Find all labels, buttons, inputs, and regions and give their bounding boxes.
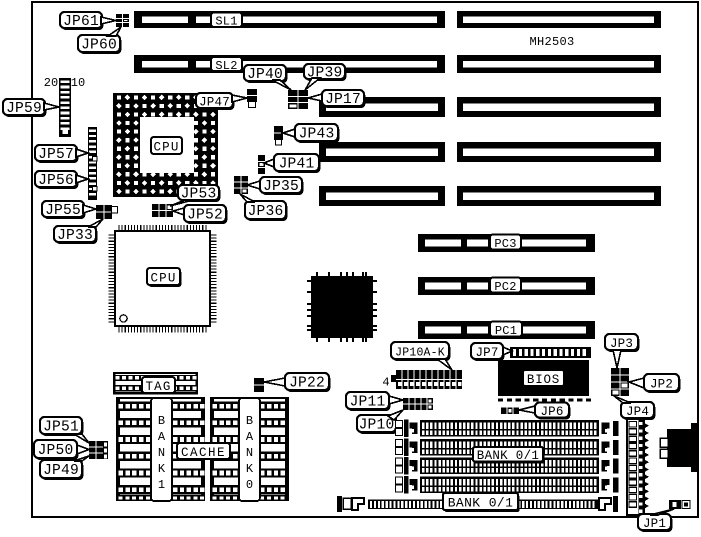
svg-text:A: A [158,430,166,444]
svg-text:N: N [158,446,165,460]
svg-text:JP17: JP17 [325,92,361,108]
svg-text:B: B [246,414,253,428]
svg-text:JP10A-K: JP10A-K [395,346,445,359]
svg-text:JP10: JP10 [359,417,395,433]
svg-text:MH2503: MH2503 [529,35,574,49]
svg-text:JP35: JP35 [263,179,299,195]
svg-text:JP61: JP61 [63,14,99,30]
svg-text:PC3: PC3 [494,237,516,251]
svg-text:JP33: JP33 [57,228,93,244]
svg-text:JP50: JP50 [38,443,74,459]
svg-text:BANK 0/1: BANK 0/1 [448,495,514,510]
svg-text:JP41: JP41 [279,156,315,172]
svg-text:K: K [158,462,166,476]
svg-text:4: 4 [382,376,389,390]
svg-text:TAG: TAG [145,380,171,394]
svg-text:JP43: JP43 [299,126,335,142]
svg-text:SL2: SL2 [215,59,237,73]
svg-text:K: K [246,462,254,476]
svg-text:A: A [246,430,254,444]
svg-text:JP6: JP6 [540,405,563,419]
svg-text:20: 20 [44,76,58,90]
svg-text:BANK 0/1: BANK 0/1 [477,449,539,463]
svg-text:JP52: JP52 [187,207,223,223]
svg-text:0: 0 [246,478,253,492]
svg-text:PC1: PC1 [495,324,517,338]
svg-text:10: 10 [71,76,85,90]
svg-text:CACHE: CACHE [181,446,226,460]
svg-text:JP55: JP55 [45,203,81,219]
svg-text:JP51: JP51 [43,419,79,435]
svg-text:JP2: JP2 [650,377,673,391]
svg-text:JP4: JP4 [626,405,649,419]
svg-text:CPU: CPU [150,271,176,285]
svg-text:JP57: JP57 [38,147,74,163]
svg-text:JP3: JP3 [610,337,633,351]
svg-text:JP59: JP59 [6,101,42,117]
svg-text:BIOS: BIOS [527,373,560,387]
svg-text:JP56: JP56 [38,173,74,189]
svg-text:SL1: SL1 [215,15,237,29]
svg-text:1: 1 [158,478,165,492]
svg-text:JP47: JP47 [199,95,230,109]
svg-text:JP22: JP22 [289,375,325,391]
svg-text:JP11: JP11 [350,394,386,410]
svg-text:JP1: JP1 [643,517,666,531]
svg-text:CPU: CPU [153,140,179,154]
svg-text:B: B [158,414,165,428]
svg-text:N: N [246,446,253,460]
svg-text:JP7: JP7 [475,346,498,360]
svg-text:JP49: JP49 [43,463,79,479]
svg-text:PC2: PC2 [494,280,516,294]
svg-text:JP36: JP36 [248,204,284,220]
svg-text:JP60: JP60 [81,37,117,53]
